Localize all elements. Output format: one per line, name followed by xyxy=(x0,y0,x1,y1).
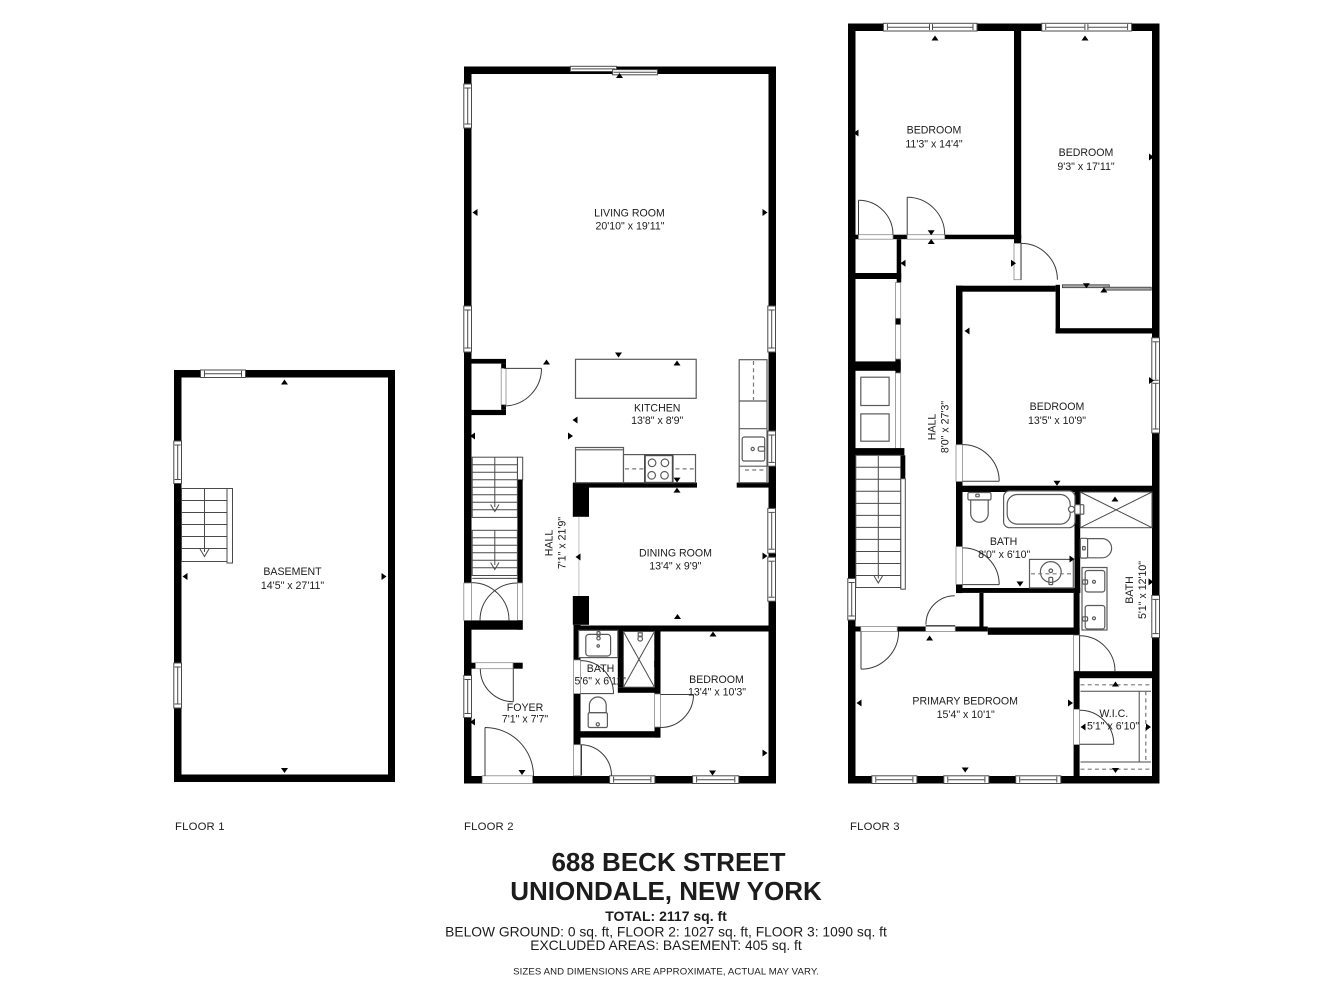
svg-text:9'3" x 17'11": 9'3" x 17'11" xyxy=(1057,161,1115,173)
svg-text:20'10" x 19'11": 20'10" x 19'11" xyxy=(595,221,664,233)
svg-text:KITCHEN: KITCHEN xyxy=(634,403,681,415)
svg-text:BATH: BATH xyxy=(1124,576,1136,603)
svg-text:7'1" x 21'9": 7'1" x 21'9" xyxy=(557,517,569,569)
svg-text:BEDROOM: BEDROOM xyxy=(907,125,962,137)
svg-text:LIVING ROOM: LIVING ROOM xyxy=(594,208,665,220)
svg-text:13'5" x 10'9": 13'5" x 10'9" xyxy=(1028,415,1086,427)
svg-text:HALL: HALL xyxy=(927,414,939,441)
svg-text:EXCLUDED AREAS: BASEMENT: 405: EXCLUDED AREAS: BASEMENT: 405 sq. ft xyxy=(530,938,802,953)
svg-text:BATH: BATH xyxy=(587,663,614,675)
svg-text:BEDROOM: BEDROOM xyxy=(1059,147,1114,159)
svg-text:HALL: HALL xyxy=(544,530,556,557)
svg-text:TOTAL: 2117 sq. ft: TOTAL: 2117 sq. ft xyxy=(605,908,727,924)
svg-text:FLOOR 1: FLOOR 1 xyxy=(175,821,225,833)
svg-text:13'4" x 9'9": 13'4" x 9'9" xyxy=(649,561,701,573)
svg-text:5'1" x 6'10": 5'1" x 6'10" xyxy=(1087,721,1139,733)
svg-text:FLOOR 3: FLOOR 3 xyxy=(850,821,900,833)
svg-text:FLOOR 2: FLOOR 2 xyxy=(464,821,514,833)
svg-text:UNIONDALE, NEW YORK: UNIONDALE, NEW YORK xyxy=(510,876,822,906)
svg-text:5'1" x 12'10": 5'1" x 12'10" xyxy=(1137,561,1149,619)
svg-text:BEDROOM: BEDROOM xyxy=(1030,401,1085,413)
svg-text:13'4" x 10'3": 13'4" x 10'3" xyxy=(688,687,746,699)
svg-text:BATH: BATH xyxy=(990,536,1017,548)
svg-text:7'1" x 7'7": 7'1" x 7'7" xyxy=(502,714,549,726)
svg-text:15'4" x 10'1": 15'4" x 10'1" xyxy=(937,709,995,721)
svg-text:BEDROOM: BEDROOM xyxy=(689,674,744,686)
svg-text:FOYER: FOYER xyxy=(507,702,544,714)
svg-text:5'6" x 6'11": 5'6" x 6'11" xyxy=(574,676,626,688)
svg-text:8'0" x 6'10": 8'0" x 6'10" xyxy=(978,549,1030,561)
svg-text:11'3" x 14'4": 11'3" x 14'4" xyxy=(905,139,963,151)
svg-text:BASEMENT: BASEMENT xyxy=(263,566,322,578)
svg-text:DINING ROOM: DINING ROOM xyxy=(639,548,712,560)
svg-text:14'5" x 27'11": 14'5" x 27'11" xyxy=(261,580,324,592)
svg-text:PRIMARY BEDROOM: PRIMARY BEDROOM xyxy=(912,696,1018,708)
svg-text:688 BECK STREET: 688 BECK STREET xyxy=(551,847,785,877)
svg-text:SIZES AND DIMENSIONS ARE APPRO: SIZES AND DIMENSIONS ARE APPROXIMATE, AC… xyxy=(513,967,819,978)
svg-text:W.I.C.: W.I.C. xyxy=(1099,708,1128,720)
svg-text:8'0" x 27'3": 8'0" x 27'3" xyxy=(940,401,952,453)
svg-text:13'8" x 8'9": 13'8" x 8'9" xyxy=(631,415,683,427)
